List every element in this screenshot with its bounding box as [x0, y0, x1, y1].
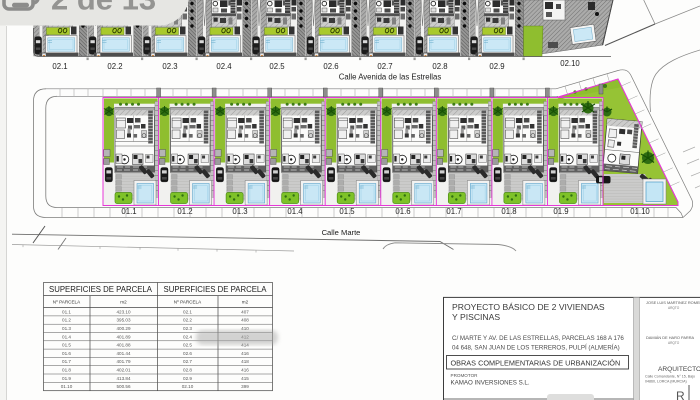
svg-text:01.6: 01.6 — [62, 351, 71, 356]
svg-text:401.44: 401.44 — [116, 351, 130, 356]
svg-text:01.7: 01.7 — [62, 359, 71, 364]
svg-text:02.1: 02.1 — [183, 309, 192, 314]
svg-text:OBRAS COMPLEMENTARIAS DE URBAN: OBRAS COMPLEMENTARIAS DE URBANIZACIÓN — [451, 358, 621, 367]
svg-text:407: 407 — [241, 309, 249, 314]
svg-text:400.29: 400.29 — [116, 326, 130, 331]
svg-text:02.9: 02.9 — [183, 376, 192, 381]
svg-text:ARQUITECTO: ARQUITECTO — [658, 366, 700, 373]
svg-text:m2: m2 — [120, 300, 127, 305]
svg-text:04860, LORCA (MURCIA): 04860, LORCA (MURCIA) — [645, 380, 687, 384]
svg-text:01.2: 01.2 — [62, 318, 71, 323]
svg-text:02.4: 02.4 — [183, 334, 192, 339]
svg-text:R: R — [676, 389, 685, 400]
svg-text:01.3: 01.3 — [62, 326, 71, 331]
svg-text:415: 415 — [241, 376, 249, 381]
svg-text:C/ MARTE Y AV. DE LAS ESTRELLA: C/ MARTE Y AV. DE LAS ESTRELLAS, PARCELA… — [452, 335, 624, 342]
svg-text:02.10: 02.10 — [560, 59, 580, 68]
svg-text:01.8: 01.8 — [62, 368, 71, 373]
svg-text:423.10: 423.10 — [116, 309, 130, 314]
svg-text:01.6: 01.6 — [395, 207, 410, 216]
svg-text:DAMIÁN DE HARO PARRA: DAMIÁN DE HARO PARRA — [646, 335, 695, 340]
svg-text:401.88: 401.88 — [116, 343, 130, 348]
svg-text:416: 416 — [241, 351, 249, 356]
svg-text:m2: m2 — [242, 300, 249, 305]
svg-text:02.8: 02.8 — [183, 368, 192, 373]
svg-text:01.7: 01.7 — [446, 207, 461, 216]
svg-text:02.4: 02.4 — [216, 62, 232, 71]
svg-text:02.2: 02.2 — [183, 318, 192, 323]
svg-text:02.10: 02.10 — [182, 384, 194, 389]
svg-text:02.3: 02.3 — [183, 326, 192, 331]
svg-text:413.84: 413.84 — [116, 376, 130, 381]
svg-text:01.5: 01.5 — [62, 343, 71, 348]
svg-text:Nº PARCELA: Nº PARCELA — [53, 300, 81, 305]
svg-text:SUPERFICIES DE PARCELA: SUPERFICIES DE PARCELA — [164, 285, 268, 294]
svg-text:01.10: 01.10 — [630, 207, 650, 216]
svg-text:399: 399 — [241, 384, 249, 389]
svg-text:01.4: 01.4 — [287, 207, 303, 216]
svg-text:02.2: 02.2 — [107, 62, 122, 71]
svg-text:01.1: 01.1 — [62, 309, 71, 314]
svg-text:01.8: 01.8 — [501, 207, 516, 216]
svg-text:401.79: 401.79 — [116, 359, 130, 364]
svg-text:02.7: 02.7 — [183, 359, 192, 364]
svg-text:Calle Comandante, N° 15, Bajo: Calle Comandante, N° 15, Bajo — [645, 375, 695, 379]
svg-text:02.9: 02.9 — [489, 62, 504, 71]
svg-text:Calle Marte: Calle Marte — [322, 228, 361, 237]
svg-text:01.9: 01.9 — [62, 376, 71, 381]
svg-text:Nº PARCELA: Nº PARCELA — [174, 300, 202, 305]
svg-text:01.10: 01.10 — [61, 384, 73, 389]
svg-text:KAMAO INVERSIONES S.L.: KAMAO INVERSIONES S.L. — [451, 380, 530, 387]
svg-text:02.3: 02.3 — [162, 62, 177, 71]
svg-text:PROYECTO BÁSICO DE 2 VIVIENDAS: PROYECTO BÁSICO DE 2 VIVIENDAS — [452, 302, 605, 312]
svg-text:02.5: 02.5 — [183, 343, 192, 348]
svg-text:02.6: 02.6 — [183, 351, 192, 356]
svg-text:SUPERFICIES DE PARCELA: SUPERFICIES DE PARCELA — [49, 285, 153, 294]
svg-text:395.03: 395.03 — [116, 318, 130, 323]
svg-text:Y PISCINAS: Y PISCINAS — [452, 312, 500, 322]
svg-text:01.2: 01.2 — [177, 207, 192, 216]
svg-text:01.5: 01.5 — [339, 207, 355, 216]
svg-text:418: 418 — [241, 359, 249, 364]
svg-text:01.4: 01.4 — [62, 334, 71, 339]
svg-text:401.89: 401.89 — [116, 334, 130, 339]
svg-text:ARQTO: ARQTO — [668, 341, 680, 345]
svg-text:402.01: 402.01 — [116, 368, 130, 373]
svg-text:01.9: 01.9 — [553, 207, 568, 216]
svg-text:01.3: 01.3 — [232, 207, 247, 216]
svg-text:02.7: 02.7 — [377, 62, 392, 71]
svg-text:02.1: 02.1 — [52, 62, 67, 71]
svg-text:02.6: 02.6 — [323, 62, 338, 71]
svg-text:500.56: 500.56 — [116, 384, 130, 389]
svg-text:04 648, SAN JUAN DE LOS TERRER: 04 648, SAN JUAN DE LOS TERREROS, PULPÍ … — [452, 345, 620, 352]
svg-text:02.5: 02.5 — [269, 62, 285, 71]
svg-text:2 de 13: 2 de 13 — [51, 0, 156, 17]
svg-text:PROMOTOR: PROMOTOR — [451, 373, 479, 378]
svg-text:02.8: 02.8 — [432, 62, 447, 71]
svg-text:ARQTO: ARQTO — [668, 306, 680, 310]
svg-text:416: 416 — [241, 368, 249, 373]
svg-text:JOSE LUIS MARTINEZ ROMER: JOSE LUIS MARTINEZ ROMER — [646, 300, 700, 305]
svg-text:Calle Avenida de las Estrellas: Calle Avenida de las Estrellas — [339, 73, 442, 82]
svg-text:01.1: 01.1 — [121, 207, 136, 216]
svg-text:408: 408 — [241, 318, 249, 323]
